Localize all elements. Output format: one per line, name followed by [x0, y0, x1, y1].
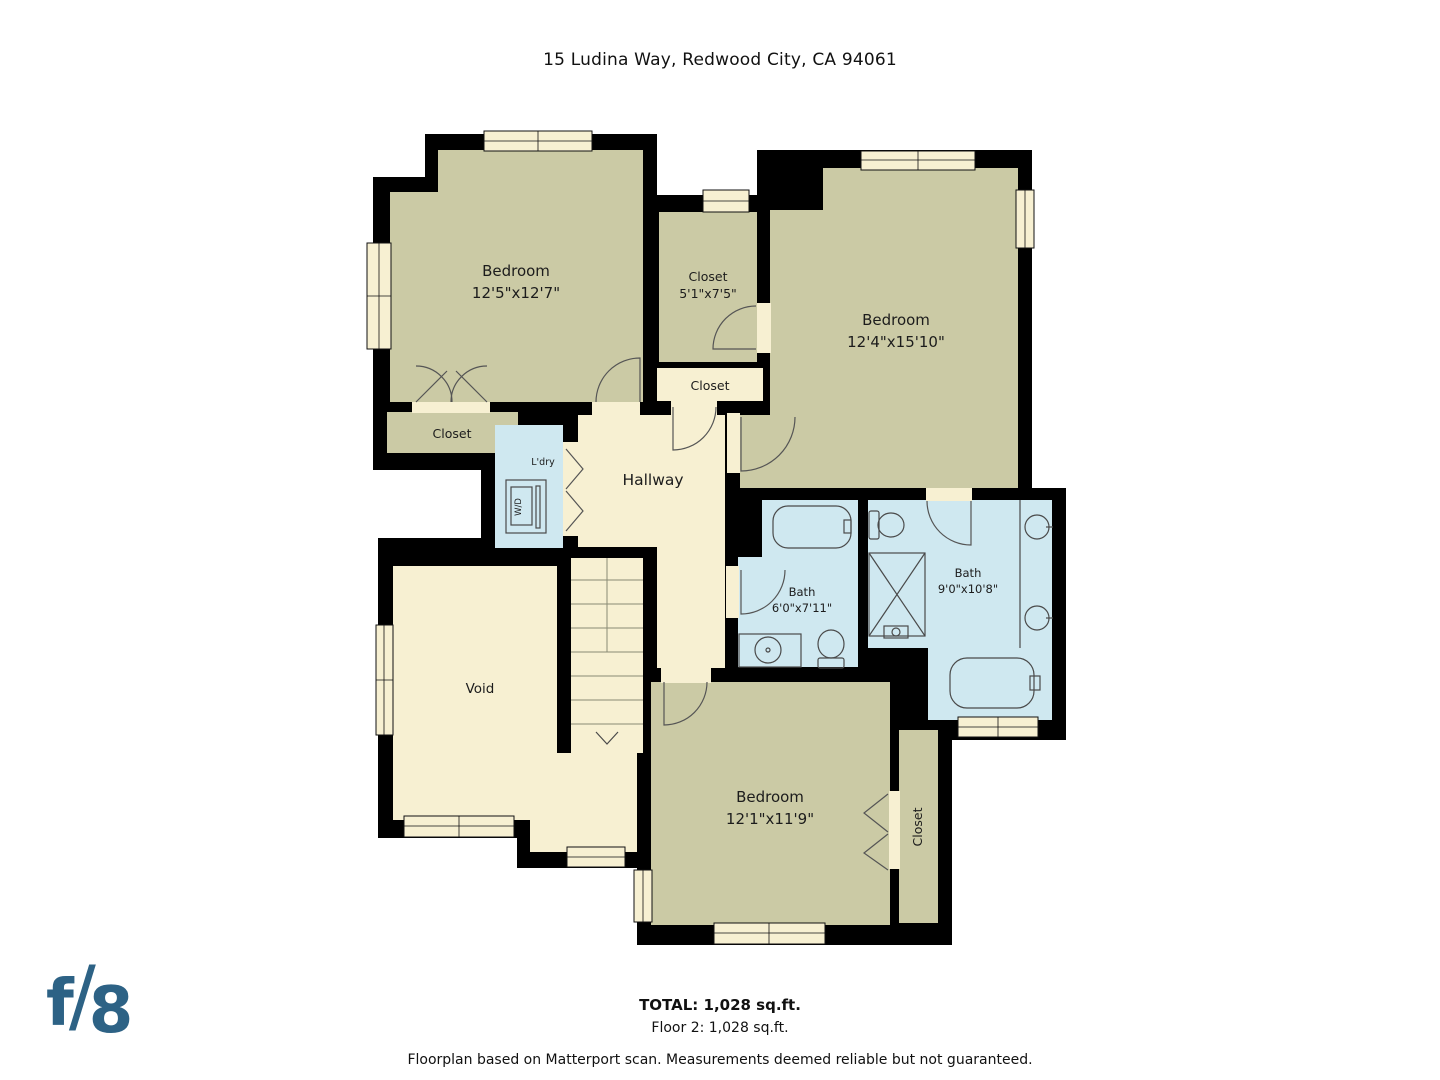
label-bedroom-bottom: Bedroom [736, 788, 804, 806]
dims-bedroom-top-left: 12'5"x12'7" [472, 284, 560, 302]
window [376, 625, 393, 735]
exterior-patch [373, 838, 517, 875]
dims-bedroom-top-right: 12'4"x15'10" [847, 333, 945, 351]
dims-bath-small: 6'0"x7'11" [772, 601, 832, 615]
window [484, 131, 592, 151]
room-void-lower-a [557, 753, 637, 820]
window [367, 243, 391, 349]
window [634, 870, 652, 922]
room-corridor [657, 547, 725, 668]
label-closet-walkin: Closet [689, 269, 728, 284]
window [861, 151, 975, 170]
window [404, 816, 514, 837]
floorplan-page: 15 Ludina Way, Redwood City, CA 94061 [0, 0, 1440, 1080]
label-washer-dryer: W/D [514, 498, 524, 516]
window [703, 190, 749, 212]
dims-closet-walkin: 5'1"x7'5" [679, 286, 737, 301]
label-bath-small: Bath [789, 585, 816, 599]
label-closet-mid: Closet [691, 378, 730, 393]
window [1016, 190, 1034, 248]
dims-bath-large: 9'0"x10'8" [938, 582, 998, 596]
disclaimer-text: Floorplan based on Matterport scan. Meas… [0, 1052, 1440, 1068]
label-void: Void [466, 681, 495, 697]
floor-area-text: Floor 2: 1,028 sq.ft. [0, 1020, 1440, 1036]
label-bedroom-top-left: Bedroom [482, 262, 550, 280]
label-bedroom-top-right: Bedroom [862, 311, 930, 329]
logo-slash: / [69, 962, 96, 1030]
label-hallway: Hallway [622, 471, 683, 489]
total-area-text: TOTAL: 1,028 sq.ft. [0, 996, 1440, 1014]
window [958, 717, 1038, 737]
label-closet-bedroom1: Closet [433, 426, 472, 441]
window [567, 847, 625, 867]
f8-logo: f / 8 [46, 972, 133, 1043]
window [714, 923, 825, 944]
dims-bedroom-bottom: 12'1"x11'9" [726, 810, 814, 828]
label-bath-large: Bath [955, 566, 982, 580]
label-closet-bedroom3: Closet [910, 807, 925, 846]
floorplan-drawing: Bedroom 12'5"x12'7" Closet 5'1"x7'5" Bed… [0, 0, 1440, 1080]
label-laundry: L'dry [531, 457, 555, 468]
